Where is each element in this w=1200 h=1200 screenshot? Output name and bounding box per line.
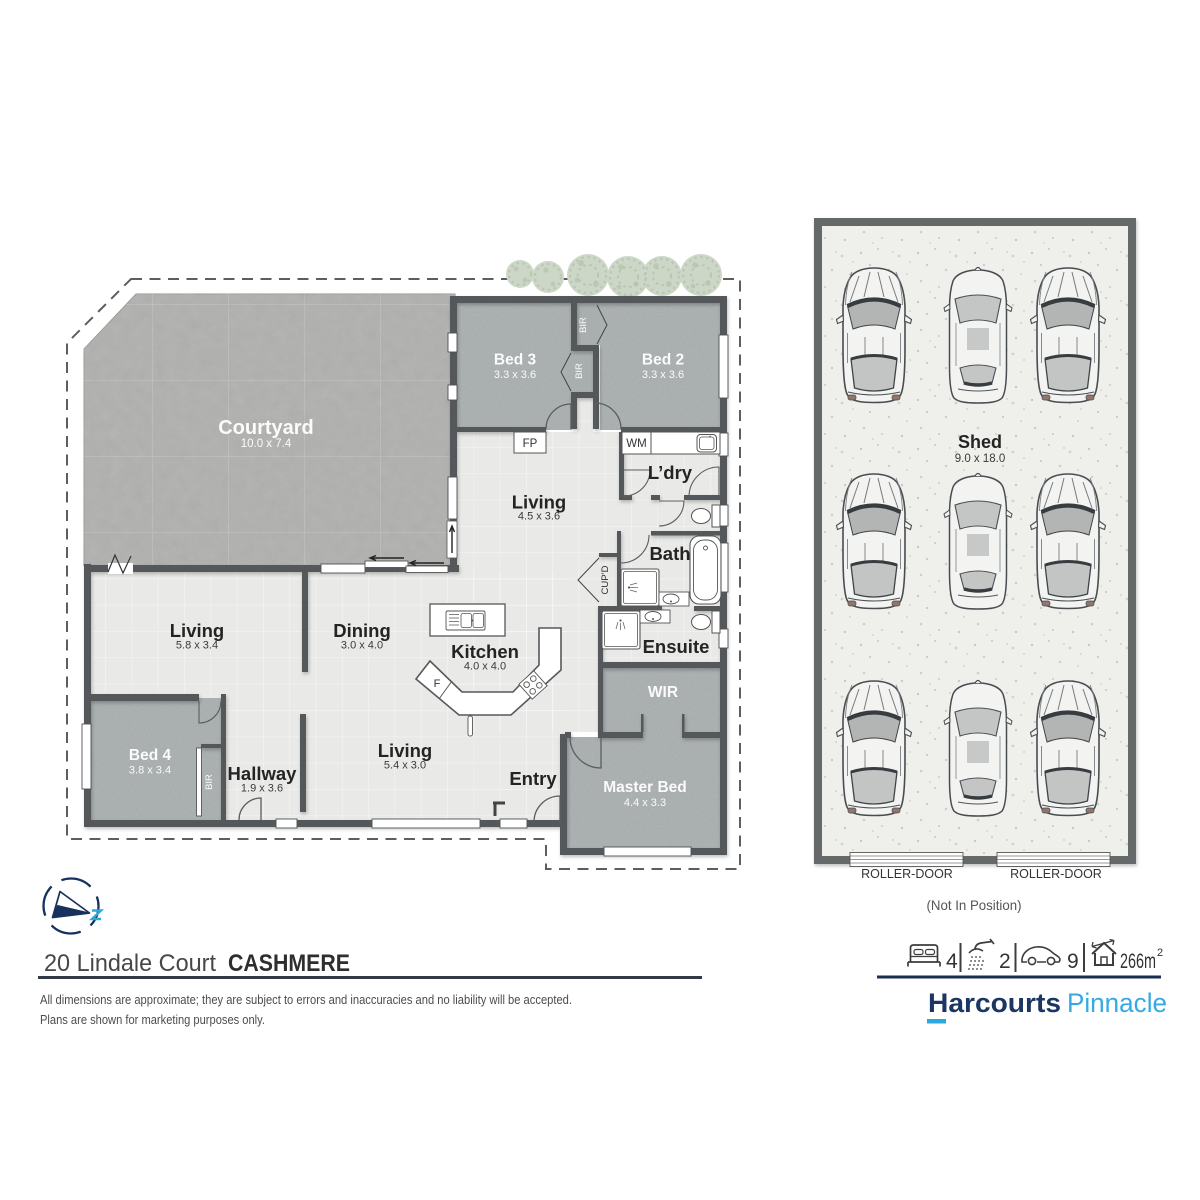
- svg-text:2: 2: [1157, 947, 1163, 959]
- svg-text:F: F: [434, 678, 441, 690]
- svg-text:CUP’D: CUP’D: [600, 565, 611, 594]
- svg-text:4.0 x 4.0: 4.0 x 4.0: [464, 661, 506, 673]
- svg-text:Pinnacle: Pinnacle: [1067, 988, 1167, 1018]
- svg-text:Plans are shown for marketing: Plans are shown for marketing purposes o…: [40, 1012, 265, 1027]
- svg-text:Master Bed: Master Bed: [603, 779, 687, 796]
- svg-text:5.4 x 3.0: 5.4 x 3.0: [384, 760, 426, 772]
- svg-text:Bed 2: Bed 2: [642, 352, 684, 369]
- svg-text:3.8 x 3.4: 3.8 x 3.4: [129, 765, 171, 777]
- svg-text:9: 9: [1067, 950, 1079, 973]
- svg-text:4.5 x 3.6: 4.5 x 3.6: [518, 511, 560, 523]
- svg-text:ROLLER-DOOR: ROLLER-DOOR: [861, 867, 953, 881]
- svg-text:Bed 4: Bed 4: [129, 747, 172, 764]
- svg-text:2: 2: [999, 950, 1011, 973]
- svg-text:BIR: BIR: [574, 363, 585, 379]
- svg-text:Kitchen: Kitchen: [451, 641, 519, 662]
- svg-text:Courtyard: Courtyard: [218, 417, 314, 439]
- svg-text:4.4 x 3.3: 4.4 x 3.3: [624, 797, 666, 809]
- svg-text:Ensuite: Ensuite: [643, 636, 710, 657]
- svg-text:BIR: BIR: [578, 317, 589, 333]
- svg-text:Bed 3: Bed 3: [494, 352, 537, 369]
- svg-text:20 Lindale Court: 20 Lindale Court: [44, 950, 216, 977]
- svg-text:10.0 x 7.4: 10.0 x 7.4: [241, 438, 292, 450]
- svg-text:3.3 x 3.6: 3.3 x 3.6: [494, 369, 536, 381]
- svg-text:WIR: WIR: [648, 684, 678, 701]
- svg-text:Hallway: Hallway: [228, 763, 298, 784]
- svg-text:Shed: Shed: [958, 432, 1002, 452]
- svg-text:CASHMERE: CASHMERE: [228, 950, 350, 977]
- svg-text:Entry: Entry: [509, 768, 557, 789]
- svg-text:Living: Living: [512, 492, 566, 513]
- svg-text:266m: 266m: [1120, 950, 1156, 973]
- svg-text:FP: FP: [523, 438, 538, 450]
- svg-text:All dimensions are approximate: All dimensions are approximate; they are…: [40, 992, 572, 1007]
- svg-text:Living: Living: [170, 620, 224, 641]
- svg-text:4: 4: [946, 950, 958, 973]
- svg-text:5.8 x 3.4: 5.8 x 3.4: [176, 640, 218, 652]
- svg-text:9.0 x 18.0: 9.0 x 18.0: [955, 453, 1006, 465]
- svg-text:Living: Living: [378, 740, 432, 761]
- svg-text:L’dry: L’dry: [648, 462, 693, 483]
- svg-text:ROLLER-DOOR: ROLLER-DOOR: [1010, 867, 1102, 881]
- svg-text:Dining: Dining: [333, 620, 391, 641]
- svg-text:BIR: BIR: [204, 774, 215, 790]
- svg-text:Bath: Bath: [649, 543, 690, 564]
- svg-text:3.3 x 3.6: 3.3 x 3.6: [642, 369, 684, 381]
- svg-text:1.9 x 3.6: 1.9 x 3.6: [241, 783, 283, 795]
- svg-text:(Not In Position): (Not In Position): [927, 897, 1022, 913]
- svg-text:Harcourts: Harcourts: [928, 988, 1061, 1018]
- svg-text:3.0 x 4.0: 3.0 x 4.0: [341, 640, 383, 652]
- svg-text:WM: WM: [626, 438, 646, 450]
